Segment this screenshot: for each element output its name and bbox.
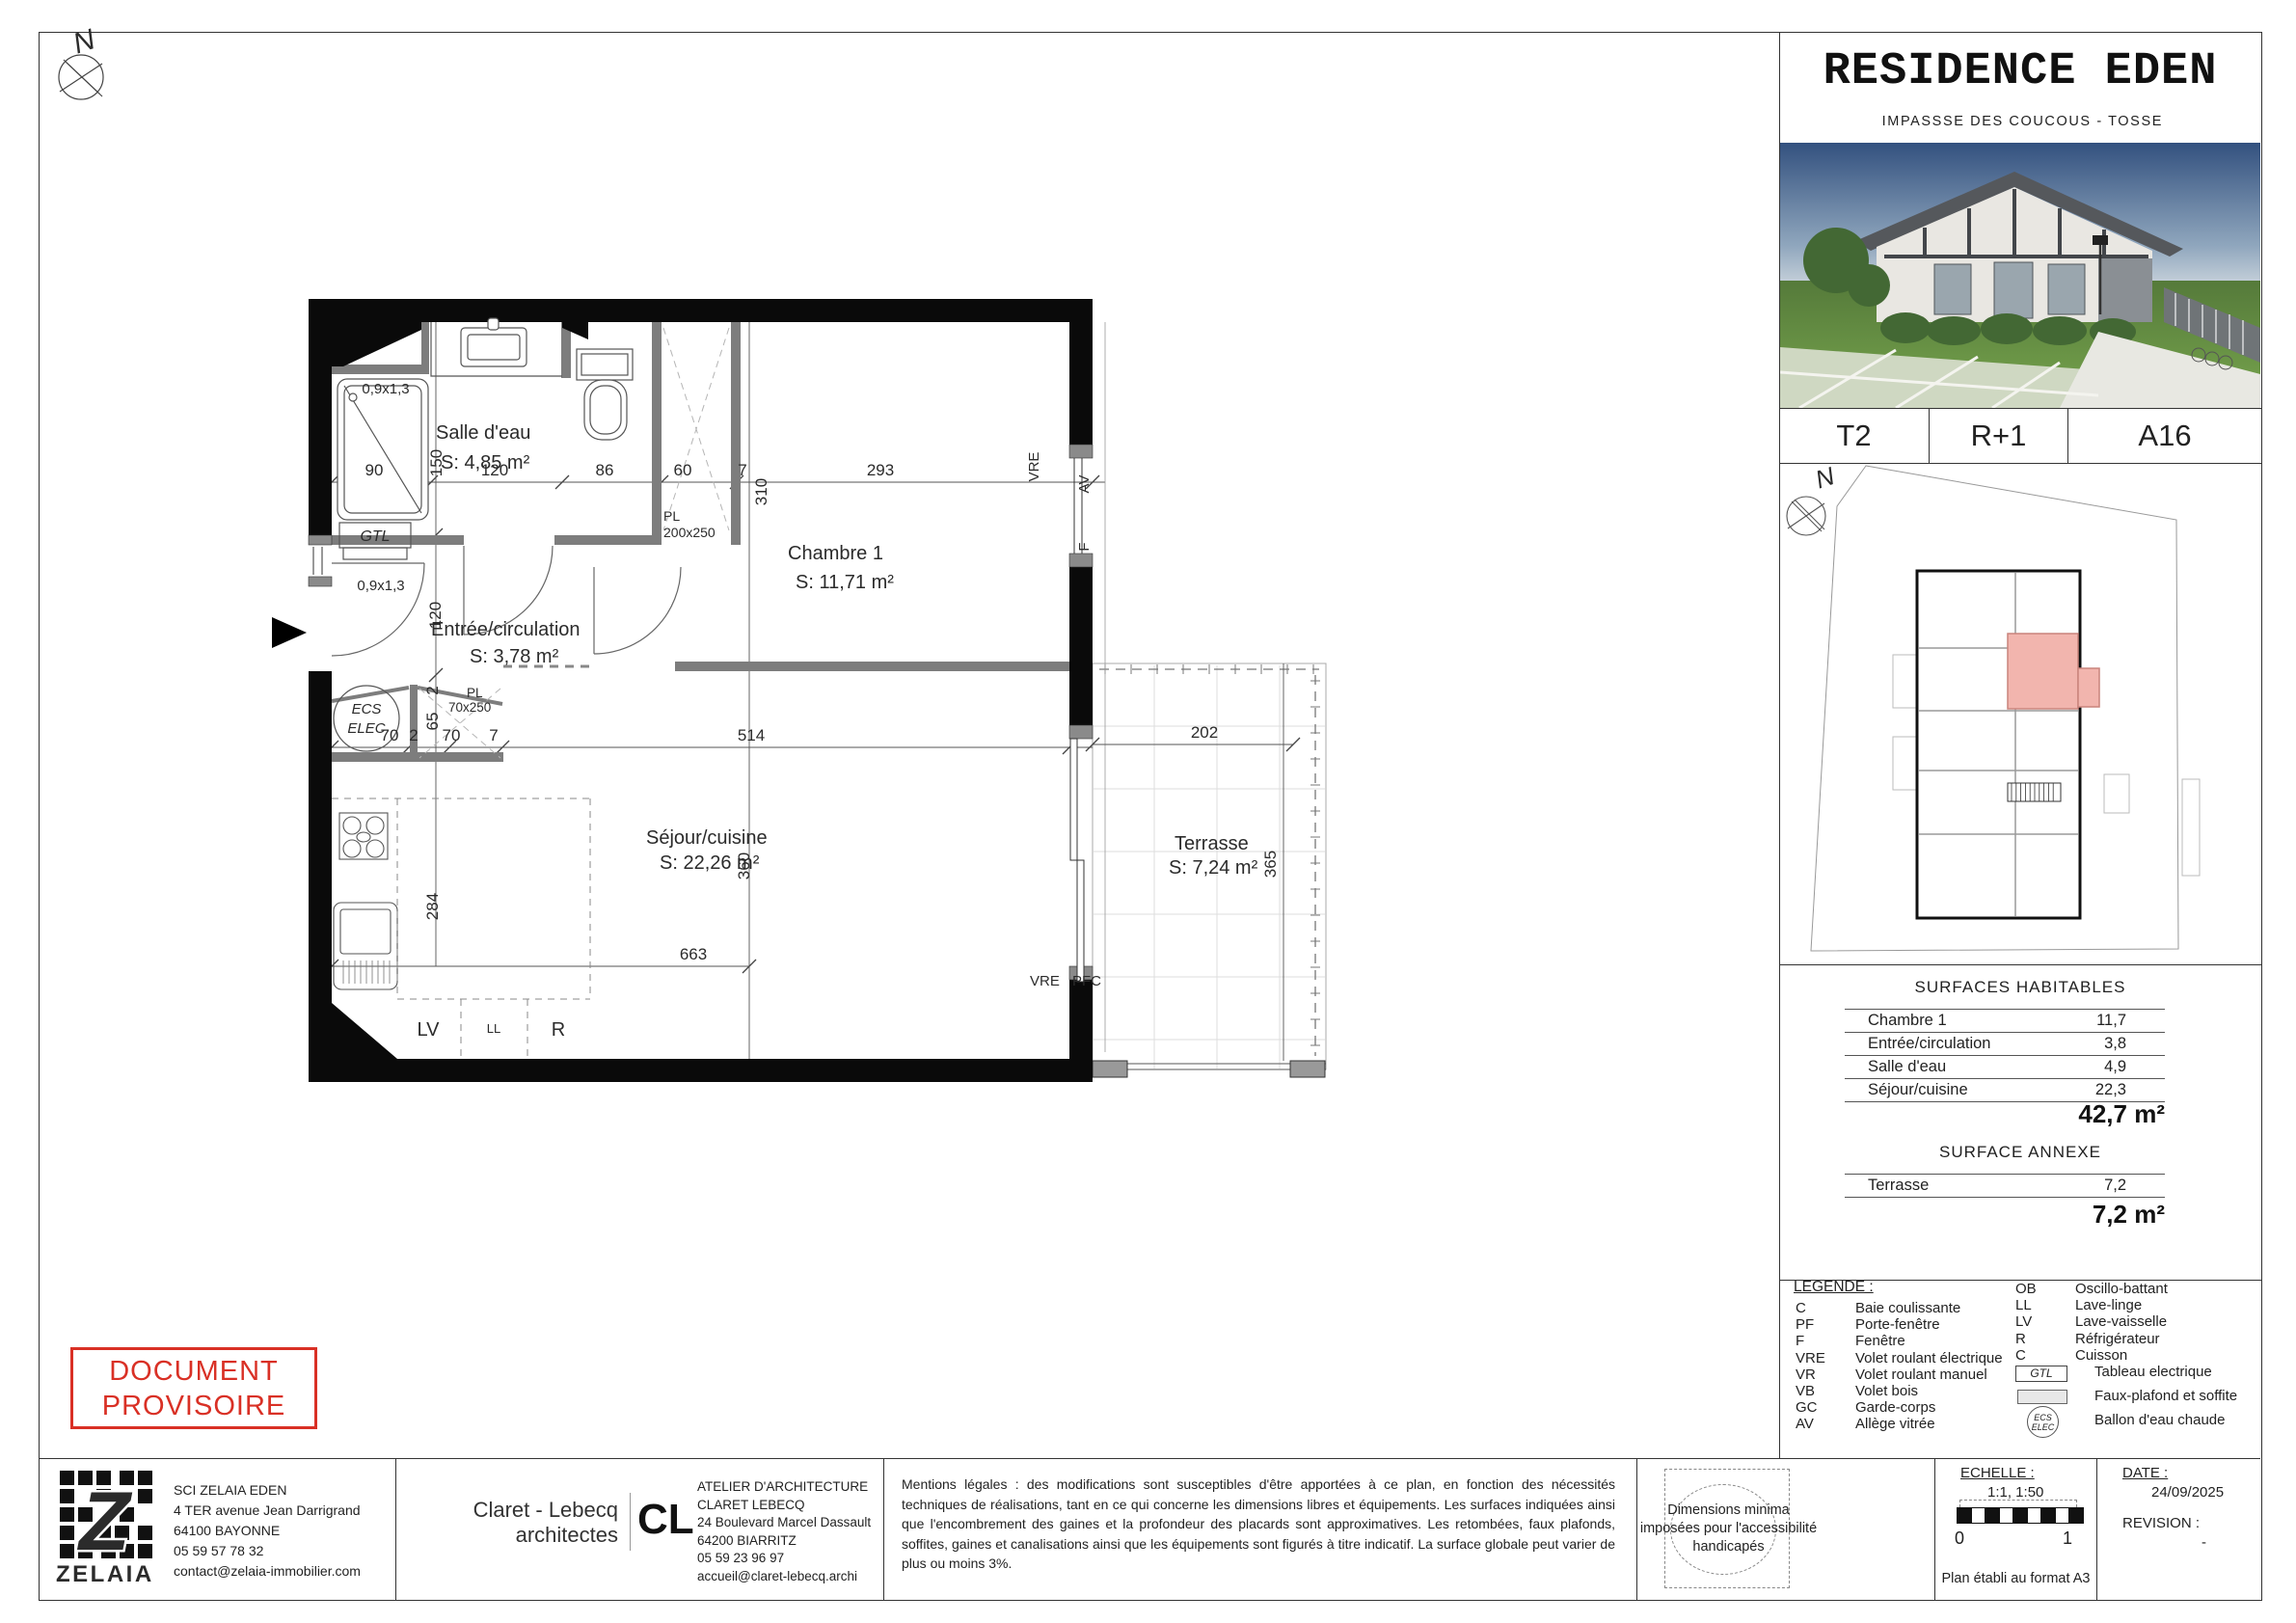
legend-label: Réfrigérateur bbox=[2075, 1331, 2160, 1347]
legend-label: Garde-corps bbox=[1855, 1399, 1935, 1416]
highlighted-unit bbox=[2008, 634, 2078, 709]
ecs-text: ECS bbox=[2028, 1413, 2058, 1422]
unit-type-cell: T2 bbox=[1779, 409, 1929, 463]
dishwasher-label: LV bbox=[418, 1019, 441, 1041]
accessibility-note: Dimensions minima imposées pour l'access… bbox=[1639, 1501, 1818, 1556]
legend-label: Lave-vaisselle bbox=[2075, 1313, 2167, 1330]
surfaces-table: Chambre 111,7Entrée/circulation3,8Salle … bbox=[1845, 1009, 2165, 1102]
window-dim: 0,9x1,3 bbox=[362, 381, 409, 397]
legend-row: AVAllège vitrée bbox=[1796, 1416, 2003, 1432]
project-title: RESIDENCE EDEN bbox=[1779, 46, 2261, 97]
dim: 120 bbox=[481, 461, 508, 479]
keyplan-north-icon bbox=[1787, 497, 1825, 535]
cl-monogram: CL bbox=[637, 1496, 694, 1544]
building-outline bbox=[1917, 571, 2080, 918]
dim: 202 bbox=[1191, 723, 1218, 742]
architect-address: 24 Boulevard Marcel Dassault bbox=[697, 1514, 883, 1532]
stamp-line: PROVISOIRE bbox=[102, 1389, 286, 1423]
legend-code: OB bbox=[2015, 1281, 2075, 1297]
room-label: Terrasse bbox=[1175, 833, 1249, 854]
sliding-door-panel bbox=[1077, 860, 1084, 982]
legend-faux-plafond-label: Faux-plafond et soffite bbox=[2094, 1388, 2237, 1404]
dim: 7 bbox=[489, 726, 498, 744]
scale-zero: 0 bbox=[1955, 1528, 1964, 1549]
room-area: S: 7,24 m² bbox=[1169, 857, 1258, 879]
project-address: IMPASSSE DES COUCOUS - TOSSE bbox=[1779, 114, 2163, 129]
annex-title: SURFACE ANNEXE bbox=[1779, 1143, 2261, 1162]
architect-name: ATELIER D'ARCHITECTURE CLARET LEBECQ bbox=[697, 1478, 883, 1514]
architect-city: 64200 BIARRITZ bbox=[697, 1532, 883, 1551]
entrance-arrow-icon bbox=[272, 617, 307, 648]
architect-phone: 05 59 23 96 97 bbox=[697, 1550, 883, 1568]
legend-label: Volet bois bbox=[1855, 1383, 1918, 1399]
legend-row: PFPorte-fenêtre bbox=[1796, 1316, 2003, 1333]
legend-row: CCuisson bbox=[2015, 1347, 2168, 1364]
legal-mentions: Mentions légales : des modifications son… bbox=[902, 1474, 1615, 1574]
surface-row: Salle d'eau4,9 bbox=[1845, 1056, 2165, 1079]
keyplan-north-label: N bbox=[1812, 462, 1838, 495]
guardrail-ticks bbox=[1105, 664, 1320, 1045]
dim: 86 bbox=[596, 461, 614, 479]
surface-value: 4,9 bbox=[2104, 1058, 2165, 1076]
scale-bar-segment bbox=[1985, 1507, 2000, 1524]
surface-name: Salle d'eau bbox=[1845, 1058, 1946, 1076]
legend-right-column: OBOscillo-battantLLLave-lingeLVLave-vais… bbox=[2015, 1281, 2168, 1364]
window-dim: 0,9x1,3 bbox=[357, 578, 404, 594]
ecs-text: ELEC bbox=[2028, 1422, 2058, 1432]
scale-bar-segment bbox=[2069, 1507, 2084, 1524]
window-label: F bbox=[1076, 542, 1093, 551]
accessibility-cell: Dimensions minima imposées pour l'access… bbox=[1637, 1459, 1935, 1600]
surface-row: Entrée/circulation3,8 bbox=[1845, 1033, 2165, 1056]
dim: 284 bbox=[423, 893, 442, 920]
sliding-door-panel bbox=[1070, 739, 1077, 860]
floor-plan: N bbox=[0, 0, 1779, 1458]
legend-gtl-symbol: GTL bbox=[2015, 1366, 2067, 1382]
legend-code: AV bbox=[1796, 1416, 1855, 1432]
scale-bar-segment bbox=[1972, 1507, 1986, 1524]
surface-name: Entrée/circulation bbox=[1845, 1035, 1990, 1053]
legend-faux-plafond-swatch bbox=[2017, 1390, 2067, 1404]
dim: 90 bbox=[365, 461, 384, 479]
annex-total: 7,2 m² bbox=[1779, 1200, 2269, 1230]
surface-value: 7,2 bbox=[2104, 1177, 2165, 1195]
legend-label: Lave-linge bbox=[2075, 1297, 2142, 1313]
kitchen-fixtures bbox=[334, 813, 397, 989]
legend-code: VB bbox=[1796, 1383, 1855, 1399]
closet-label: PL bbox=[467, 686, 483, 700]
closet-label: PL bbox=[663, 508, 680, 524]
owner-email[interactable]: contact@zelaia-immobilier.com bbox=[174, 1561, 395, 1582]
legend-code: LL bbox=[2015, 1297, 2075, 1313]
owner-cell: Z ZELAIA SCI ZELAIA EDEN 4 TER avenue Je… bbox=[39, 1459, 396, 1600]
unit-info-row: T2 R+1 A16 bbox=[1779, 408, 2261, 464]
legend-code: PF bbox=[1796, 1316, 1855, 1333]
scale-bar-segment bbox=[2000, 1507, 2014, 1524]
washer-label: LL bbox=[487, 1021, 500, 1036]
terrace-post bbox=[1093, 1061, 1127, 1077]
north-compass-icon bbox=[59, 55, 103, 99]
building-render bbox=[1780, 143, 2260, 408]
surface-value: 11,7 bbox=[2096, 1012, 2165, 1030]
legend-label: Porte-fenêtre bbox=[1855, 1316, 1940, 1333]
legend-label: Fenêtre bbox=[1855, 1333, 1905, 1349]
scale-bar-segment bbox=[2028, 1507, 2042, 1524]
dim: 60 bbox=[674, 461, 692, 479]
shutter-label: VRE bbox=[1030, 973, 1060, 989]
dim: 310 bbox=[752, 478, 770, 505]
surface-name: Chambre 1 bbox=[1845, 1012, 1947, 1030]
legend-code: GC bbox=[1796, 1399, 1855, 1416]
scale-bar bbox=[1957, 1507, 2084, 1524]
legend-row: FFenêtre bbox=[1796, 1333, 2003, 1349]
scale-cell: ECHELLE : 1:1, 1:50 0 1 Plan établi au f… bbox=[1935, 1459, 2097, 1600]
legend-ecs-symbol: ECS ELEC bbox=[2027, 1406, 2059, 1438]
legend-title: LEGENDE : bbox=[1794, 1279, 1874, 1296]
interior-walls bbox=[332, 322, 1069, 762]
legend-row: GCGarde-corps bbox=[1796, 1399, 2003, 1416]
date-value: 24/09/2025 bbox=[2151, 1484, 2224, 1501]
zelaia-logo: Z ZELAIA bbox=[56, 1469, 152, 1586]
date-cell: DATE : 24/09/2025 REVISION : - bbox=[2097, 1459, 2260, 1600]
floor-cell: R+1 bbox=[1929, 409, 2067, 463]
room-area: S: 3,78 m² bbox=[470, 646, 559, 667]
fridge-label: R bbox=[552, 1019, 565, 1041]
dim: 365 bbox=[1261, 851, 1280, 878]
room-label: Chambre 1 bbox=[788, 543, 883, 564]
dim: 2 bbox=[409, 726, 418, 744]
legend-code: VR bbox=[1796, 1366, 1855, 1383]
scale-one: 1 bbox=[2063, 1528, 2072, 1549]
legend-row: VBVolet bois bbox=[1796, 1383, 2003, 1399]
legend-left-column: CBaie coulissantePFPorte-fenêtreFFenêtre… bbox=[1796, 1300, 2003, 1433]
legend-row: OBOscillo-battant bbox=[2015, 1281, 2168, 1297]
dim: 293 bbox=[867, 461, 894, 479]
surfaces-title: SURFACES HABITABLES bbox=[1779, 978, 2261, 997]
surfaces-total: 42,7 m² bbox=[1779, 1099, 2269, 1129]
owner-name: SCI ZELAIA EDEN bbox=[174, 1480, 395, 1501]
room-label: Entrée/circulation bbox=[431, 619, 581, 640]
date-title: DATE : bbox=[2122, 1465, 2168, 1481]
legend-code: VRE bbox=[1796, 1350, 1855, 1366]
owner-address: 4 TER avenue Jean Darrigrand 64100 BAYON… bbox=[174, 1501, 395, 1541]
legend-code: C bbox=[2015, 1347, 2075, 1364]
legend-code: F bbox=[1796, 1333, 1855, 1349]
legend-row: CBaie coulissante bbox=[1796, 1300, 2003, 1316]
gtl-label: GTL bbox=[360, 528, 390, 545]
scale-bar-segment bbox=[2041, 1507, 2056, 1524]
closet-label: 70x250 bbox=[448, 700, 491, 715]
north-label: N bbox=[69, 23, 99, 60]
revision-value: - bbox=[2201, 1534, 2206, 1551]
legend-label: Cuisson bbox=[2075, 1347, 2127, 1364]
stamp-line: DOCUMENT bbox=[109, 1354, 279, 1389]
owner-phone: 05 59 57 78 32 bbox=[174, 1541, 395, 1561]
zelaia-wordmark: ZELAIA bbox=[56, 1561, 152, 1586]
revision-title: REVISION : bbox=[2122, 1515, 2200, 1531]
scale-bar-segment bbox=[2013, 1507, 2028, 1524]
dim: 663 bbox=[680, 945, 707, 963]
legend-row: RRéfrigérateur bbox=[2015, 1331, 2168, 1347]
dim: 70 bbox=[443, 726, 461, 744]
architect-wordmark: Claret - Lebecq bbox=[425, 1498, 618, 1523]
cooktop bbox=[339, 813, 388, 859]
architect-wordmark: architectes bbox=[425, 1523, 618, 1548]
surface-value: 3,8 bbox=[2104, 1035, 2165, 1053]
legend-row: VRVolet roulant manuel bbox=[1796, 1366, 2003, 1383]
legend-label: Baie coulissante bbox=[1855, 1300, 1960, 1316]
dim: 2 bbox=[423, 686, 442, 694]
room-area: S: 11,71 m² bbox=[796, 572, 894, 593]
plan-sheet: N bbox=[0, 0, 2296, 1623]
ecs-label: ELEC bbox=[347, 720, 385, 737]
ecs-label: ECS bbox=[352, 701, 382, 717]
legend-gtl-label: Tableau electrique bbox=[2094, 1364, 2212, 1380]
provisional-stamp: DOCUMENT PROVISOIRE bbox=[70, 1347, 317, 1429]
legend-code: R bbox=[2015, 1331, 2075, 1347]
legend-code: LV bbox=[2015, 1313, 2075, 1330]
room-label: Salle d'eau bbox=[436, 422, 530, 444]
shutter-label: VRE bbox=[1026, 452, 1042, 482]
stairs bbox=[2008, 783, 2061, 801]
section-divider bbox=[1779, 964, 2261, 965]
glazing-label: AV bbox=[1076, 475, 1093, 494]
legend-row: LLLave-linge bbox=[2015, 1297, 2168, 1313]
highlighted-unit-terrace bbox=[2078, 668, 2099, 707]
annex-table: Terrasse7,2 bbox=[1845, 1174, 2165, 1198]
dim: 120 bbox=[426, 602, 445, 629]
scale-value: 1:1, 1:50 bbox=[1987, 1484, 2043, 1501]
legend-row: VREVolet roulant électrique bbox=[1796, 1350, 2003, 1366]
terrace-post bbox=[1290, 1061, 1325, 1077]
dim: 7 bbox=[738, 461, 746, 479]
zelaia-z: Z bbox=[76, 1475, 133, 1568]
dim: 514 bbox=[738, 726, 765, 744]
dim: 360 bbox=[735, 852, 753, 879]
surface-name: Terrasse bbox=[1845, 1177, 1929, 1195]
title-block-footer: Z ZELAIA SCI ZELAIA EDEN 4 TER avenue Je… bbox=[39, 1458, 2260, 1600]
scale-bar-segment bbox=[2056, 1507, 2070, 1524]
legend-label: Volet roulant manuel bbox=[1855, 1366, 1987, 1383]
dim: 150 bbox=[427, 449, 446, 476]
surface-row: Chambre 111,7 bbox=[1845, 1010, 2165, 1033]
closet-label: 200x250 bbox=[663, 525, 716, 540]
door-label: PFC bbox=[1072, 973, 1101, 989]
surface-name: Séjour/cuisine bbox=[1845, 1081, 1968, 1099]
surface-row: Terrasse7,2 bbox=[1845, 1175, 2165, 1198]
surface-value: 22,3 bbox=[2095, 1081, 2165, 1099]
legend-label: Volet roulant électrique bbox=[1855, 1350, 2003, 1366]
architect-email[interactable]: accueil@claret-lebecq.archi bbox=[697, 1568, 883, 1586]
legend-row: LVLave-vaisselle bbox=[2015, 1313, 2168, 1330]
scale-title: ECHELLE : bbox=[1960, 1465, 2035, 1481]
legal-cell: Mentions légales : des modifications son… bbox=[884, 1459, 1637, 1600]
format-note: Plan établi au format A3 bbox=[1935, 1571, 2096, 1586]
legend-label: Allège vitrée bbox=[1855, 1416, 1935, 1432]
legend-ecs-label: Ballon d'eau chaude bbox=[2094, 1412, 2225, 1428]
dim: 65 bbox=[423, 713, 442, 731]
room-label: Séjour/cuisine bbox=[646, 827, 768, 849]
legend-label: Oscillo-battant bbox=[2075, 1281, 2168, 1297]
scale-bar-segment bbox=[1957, 1507, 1972, 1524]
unit-id-cell: A16 bbox=[2067, 409, 2261, 463]
architect-cell: Claret - Lebecq architectes CL ATELIER D… bbox=[396, 1459, 884, 1600]
legend-code: C bbox=[1796, 1300, 1855, 1316]
key-plan: N bbox=[1779, 462, 2261, 964]
